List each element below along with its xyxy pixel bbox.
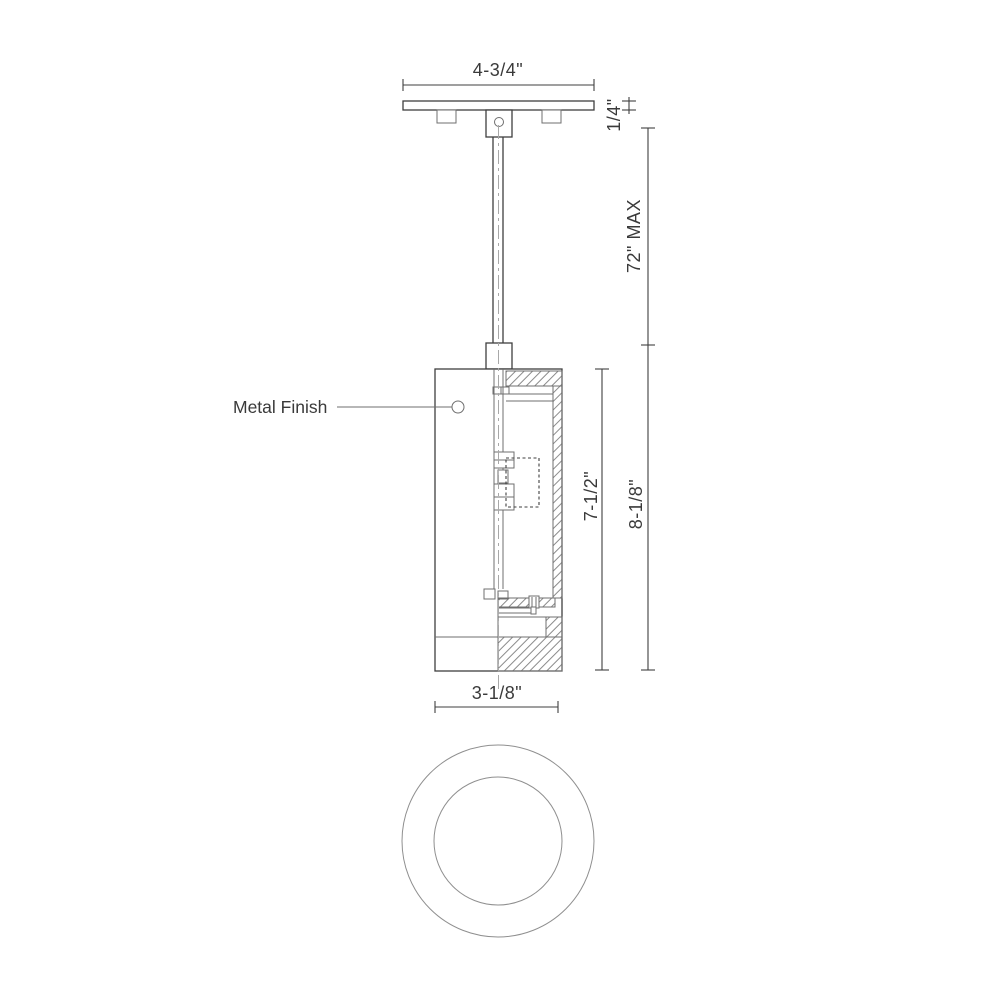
dimension-body-height: 7-1/2" bbox=[581, 369, 609, 670]
dimension-suspension-max-text: 72" MAX bbox=[624, 199, 644, 273]
dimension-canopy-thickness-text: 1/4" bbox=[604, 98, 624, 131]
dimension-canopy-width-text: 4-3/4" bbox=[473, 60, 523, 80]
metal-finish-label: Metal Finish bbox=[233, 397, 327, 417]
inner-diameter-circle bbox=[434, 777, 562, 905]
bottom-plan-view bbox=[402, 745, 594, 937]
retainer-ring-section bbox=[498, 596, 555, 608]
dimension-canopy-width: 4-3/4" bbox=[403, 60, 594, 91]
side-wall-section bbox=[553, 386, 562, 598]
leader-target-circle bbox=[452, 401, 464, 413]
dimension-body-height-text: 7-1/2" bbox=[581, 471, 601, 521]
bottom-cap-section bbox=[498, 637, 562, 671]
metal-finish-callout: Metal Finish bbox=[233, 397, 464, 417]
dimension-overall-height-text: 8-1/8" bbox=[626, 479, 646, 529]
technical-drawing: 4-3/4" 1/4" 72" MAX bbox=[0, 0, 1000, 1000]
canopy-screw-left bbox=[437, 110, 456, 123]
dimension-body-diameter-text: 3-1/8" bbox=[472, 683, 522, 703]
dimension-overall-height: 8-1/8" bbox=[626, 345, 655, 670]
canopy-screw-right bbox=[542, 110, 561, 123]
dimension-body-diameter: 3-1/8" bbox=[435, 683, 558, 713]
dimension-canopy-thickness: 1/4" bbox=[604, 97, 636, 132]
spec-sheet-page: 4-3/4" 1/4" 72" MAX bbox=[0, 0, 1000, 1000]
top-cap-section bbox=[506, 371, 562, 386]
diffuser-plate bbox=[498, 607, 536, 614]
dimension-suspension-max: 72" MAX bbox=[624, 128, 655, 345]
outer-diameter-circle bbox=[402, 745, 594, 937]
bottom-step-section bbox=[546, 617, 562, 637]
